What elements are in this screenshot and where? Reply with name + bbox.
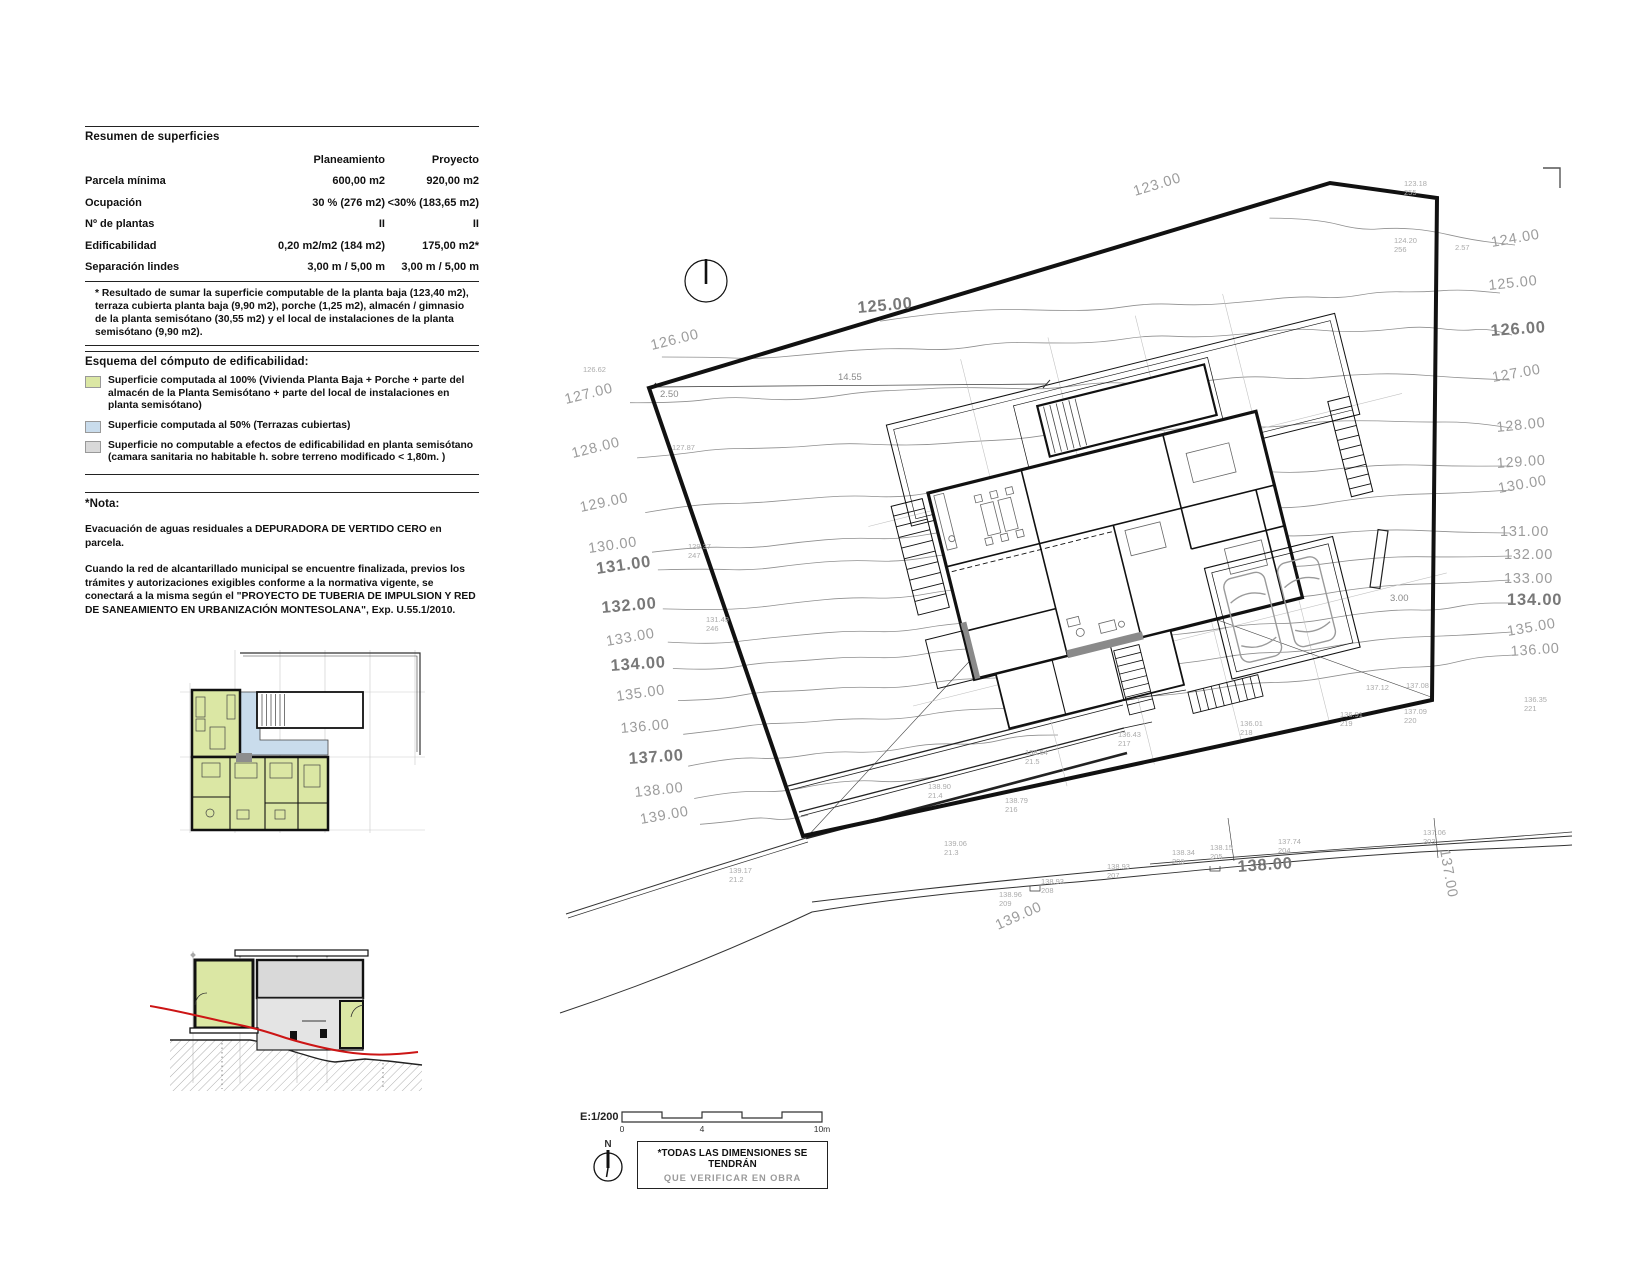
nota-title: *Nota:	[85, 493, 479, 510]
spot-elevation-value: 139.06	[944, 839, 967, 848]
north-needle-tail	[607, 1168, 609, 1177]
contour-label: 133.00	[605, 626, 656, 650]
spot-elevation-value: 136.35	[1524, 695, 1547, 704]
spot-elevation-number: 256	[1394, 245, 1407, 254]
site-plan: 126.00127.00128.00129.00130.00131.00132.…	[545, 140, 1577, 1050]
spot-elevation-number: 247	[688, 551, 701, 560]
tree-symbol	[685, 259, 727, 302]
contour-label: 128.00	[570, 434, 622, 461]
nota-panel: *Nota: Evacuación de aguas residuales a …	[85, 492, 479, 617]
spot-elevation-value: 138.93	[1041, 877, 1064, 886]
contour-line	[662, 327, 1512, 358]
east-stairs	[1328, 396, 1373, 496]
verification-note-box: *TODAS LAS DIMENSIONES SE TENDRÁN QUE VE…	[637, 1141, 828, 1189]
road-edges	[560, 818, 1572, 1013]
contour-label: 132.00	[1504, 547, 1553, 563]
spot-elevation-value: 137.74	[1278, 837, 1301, 846]
spot-elevation-value: 138.96	[999, 890, 1022, 899]
spot-elevation-value: 138.15	[1210, 843, 1233, 852]
summary-table: Planeamiento Proyecto Parcela mínima 600…	[85, 149, 479, 278]
spot-elevation-value: 136.01	[1240, 719, 1263, 728]
col-proyecto: Proyecto	[385, 154, 479, 166]
contour-line	[880, 290, 1500, 321]
gray-swatch	[85, 441, 101, 453]
col-planeamiento: Planeamiento	[235, 154, 385, 166]
spot-elevation-value: 138.93	[1107, 862, 1130, 871]
spot-elevation-number: 206	[1172, 857, 1185, 866]
contour-label: 129.00	[1496, 453, 1546, 472]
contour-label: 127.00	[563, 380, 615, 407]
spot-elevation-value: 138.90	[928, 782, 951, 791]
dimension-label: 3.00	[1390, 593, 1409, 604]
green-swatch	[85, 376, 101, 388]
upper-gray-room	[257, 960, 363, 998]
contour-line	[1270, 218, 1516, 245]
contour-label: 138.00	[1237, 854, 1293, 876]
spot-elevation-value: 2.57	[1455, 243, 1470, 252]
spot-elevation-value: 127.87	[672, 443, 695, 452]
frame-corner-bracket	[1543, 168, 1560, 188]
nota-paragraph-2: Cuando la red de alcantarillado municipa…	[85, 563, 479, 617]
spot-elevation-number: 203	[1423, 837, 1436, 846]
spot-elevation-value: 139.17	[729, 866, 752, 875]
spot-elevation-number: 255	[1404, 188, 1417, 197]
contour-label: 127.00	[1491, 362, 1542, 386]
floorplan-thumbnail	[180, 645, 425, 835]
surface-summary-panel: Resumen de superficies Planeamiento Proy…	[85, 126, 479, 346]
spot-elevation-number: 216	[1005, 805, 1018, 814]
summary-title: Resumen de superficies	[85, 127, 479, 143]
spot-elevation-value: 137.12	[1366, 683, 1389, 692]
plan-sheet: { "panel": { "table": { "title": "Resume…	[0, 0, 1650, 1275]
building-plan	[834, 258, 1474, 818]
contour-label: 134.00	[1507, 591, 1562, 609]
table-row: Nº de plantas II II	[85, 214, 479, 236]
contour-label: 126.00	[649, 326, 701, 353]
spot-elevation-value: 131.49	[706, 615, 729, 624]
spot-elevation-number: 209	[999, 899, 1012, 908]
contour-label: 137.00	[1436, 848, 1460, 899]
north-label: N	[604, 1139, 611, 1150]
contour-label: 135.00	[615, 682, 666, 705]
contour-label: 125.00	[1488, 273, 1539, 294]
section-drawing	[150, 893, 442, 1093]
spot-elevation-number: 21.3	[944, 848, 959, 857]
contour-label: 139.00	[639, 804, 690, 828]
spot-elevation-value: 129.37	[688, 542, 711, 551]
pool	[257, 692, 363, 728]
scale-bar-outline	[622, 1112, 822, 1122]
note-line-2: QUE VERIFICAR EN OBRA	[641, 1173, 824, 1183]
spot-elevation-value: 138.79	[1005, 796, 1028, 805]
blue-swatch	[85, 421, 101, 433]
spot-elevation-number: 246	[706, 624, 719, 633]
contour-label: 131.00	[1500, 524, 1549, 540]
gray-wall-segment	[236, 753, 252, 762]
spot-elevation-value: 138.34	[1172, 848, 1195, 857]
table-header-row: Planeamiento Proyecto	[85, 149, 479, 171]
spot-elevation-number: 205	[1210, 852, 1223, 861]
note-line-1: *TODAS LAS DIMENSIONES SE TENDRÁN	[641, 1148, 824, 1170]
scale-tick-10m: 10m	[814, 1124, 831, 1134]
spot-elevation-value: 136.91	[1340, 710, 1363, 719]
contour-label: 135.00	[1506, 616, 1557, 640]
legend-item-100: Superficie computada al 100% (Vivienda P…	[85, 375, 479, 413]
contour-label: 136.00	[620, 717, 670, 737]
dimension-label: 14.55	[838, 372, 862, 383]
scale-bar: E:1/200 0 4 10m	[580, 1104, 840, 1136]
spot-elevation-number: 217	[1118, 739, 1131, 748]
spot-elevation-number: 204	[1278, 846, 1291, 855]
legend-title: Esquema del cómputo de edificabilidad:	[85, 352, 479, 368]
roof-slab	[235, 950, 368, 956]
dimension-label: 2.50	[660, 389, 679, 400]
scale-tick-4: 4	[700, 1124, 705, 1134]
contour-label: 134.00	[610, 653, 666, 675]
contour-label: 123.00	[1131, 170, 1183, 200]
edificability-legend: Esquema del cómputo de edificabilidad: S…	[85, 351, 479, 475]
pillar	[320, 1029, 327, 1038]
contour-label: 129.00	[579, 490, 630, 516]
table-row: Ocupación 30 % (276 m2) <30% (183,65 m2)	[85, 192, 479, 214]
spot-elevation-number: 21.5	[1025, 757, 1040, 766]
table-row: Edificabilidad 0,20 m2/m2 (184 m2) 175,0…	[85, 235, 479, 257]
contour-label: 138.00	[634, 780, 685, 801]
legend-item-nocompute: Superficie no computable a efectos de ed…	[85, 440, 479, 465]
instalaciones-room	[340, 1001, 363, 1048]
contour-line	[688, 735, 1058, 766]
nota-paragraph-1: Evacuación de aguas residuales a DEPURAD…	[85, 523, 479, 550]
table-row: Separación lindes 3,00 m / 5,00 m 3,00 m…	[85, 257, 479, 279]
contour-label: 125.00	[857, 294, 914, 317]
contour-label: 130.00	[587, 534, 638, 557]
contour-label: 132.00	[601, 594, 658, 617]
spot-elevation-value: 137.08	[1406, 681, 1429, 690]
spot-elevation-value: 138.64	[1025, 748, 1048, 757]
spot-elevation-number: 21.2	[729, 875, 744, 884]
spot-elevation-number: 21.4	[928, 791, 943, 800]
contour-label: 124.00	[1490, 227, 1541, 251]
spot-elevation-value: 124.20	[1394, 236, 1417, 245]
contour-label: 136.00	[1510, 641, 1560, 660]
contour-label: 131.00	[595, 552, 652, 578]
spot-elevation-number: 207	[1107, 871, 1120, 880]
bedroom-wing	[192, 757, 328, 830]
contour-label: 126.00	[1490, 318, 1546, 340]
retaining-wall	[1370, 530, 1388, 589]
spot-elevation-number: 221	[1524, 704, 1537, 713]
spot-elevation-number: 208	[1041, 886, 1054, 895]
spot-elevation-number: 219	[1340, 719, 1353, 728]
spot-elevation-value: 126.62	[583, 365, 606, 374]
table-row: Parcela mínima 600,00 m2 920,00 m2	[85, 171, 479, 193]
contour-line	[700, 815, 808, 824]
table-footnote: * Resultado de sumar la superficie compu…	[85, 281, 479, 346]
floor-slab	[190, 1028, 258, 1033]
legend-item-50: Superficie computada al 50% (Terrazas cu…	[85, 420, 479, 433]
spot-elevation-value: 137.06	[1423, 828, 1446, 837]
contour-label: 137.00	[628, 746, 684, 768]
north-arrow: N	[590, 1136, 626, 1188]
ground-floor-rooms	[192, 690, 240, 757]
spot-elevation-number: 218	[1240, 728, 1253, 737]
spot-elevation-value: 123.18	[1404, 179, 1427, 188]
spot-elevation-number: 220	[1404, 716, 1417, 725]
scale-tick-0: 0	[620, 1124, 625, 1134]
contour-label: 130.00	[1497, 473, 1548, 497]
spot-elevation-value: 136.43	[1118, 730, 1141, 739]
contour-label: 133.00	[1504, 571, 1553, 587]
driveway-walls	[788, 690, 1186, 838]
contour-label: 128.00	[1496, 415, 1547, 436]
scale-label: E:1/200	[580, 1111, 619, 1123]
spot-elevation-value: 137.09	[1404, 707, 1427, 716]
